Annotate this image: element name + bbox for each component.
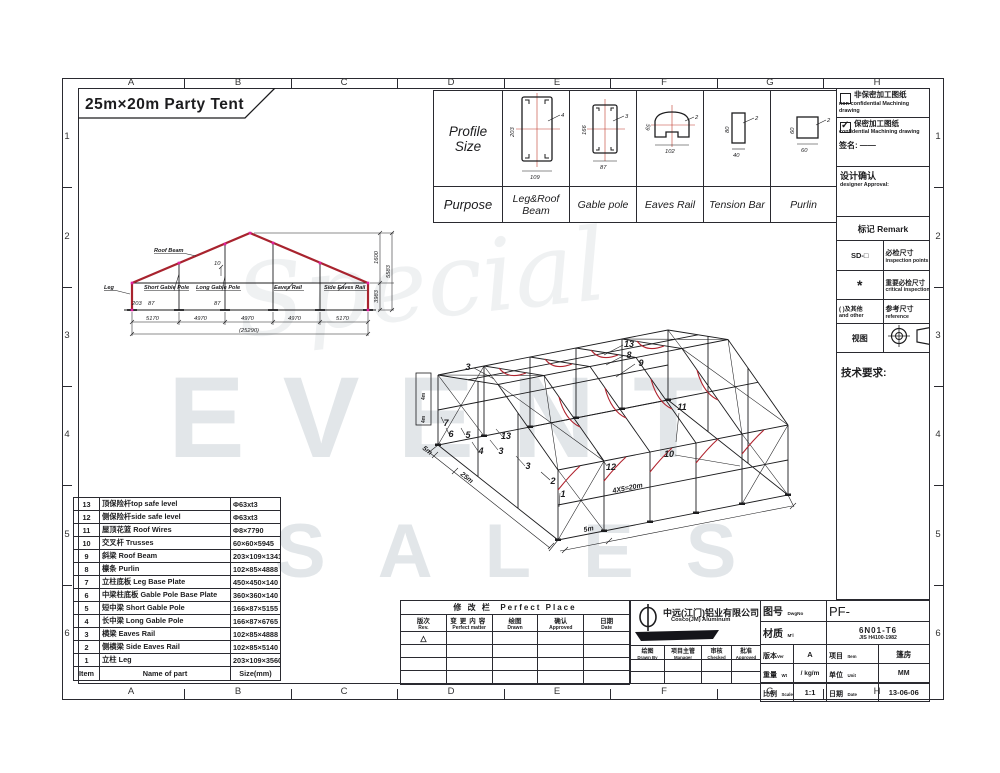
svg-text:203: 203 bbox=[510, 127, 516, 138]
svg-text:3: 3 bbox=[625, 114, 629, 120]
label-short-gable-pole: Short Gable Pole bbox=[144, 285, 189, 291]
table-row: 5短中梁 Short Gable Pole166×87×5155 bbox=[74, 602, 281, 615]
iso-label-2: 2 bbox=[549, 476, 555, 486]
confidential-box: ✓ 保密加工图纸 confidential Machining drawing … bbox=[836, 117, 930, 167]
svg-text:2: 2 bbox=[826, 118, 831, 124]
grid-row-right: 2 bbox=[931, 231, 945, 242]
nonconfidential-cn: 非保密加工图纸 bbox=[854, 91, 927, 99]
svg-text:3983: 3983 bbox=[374, 289, 380, 303]
svg-text:5170: 5170 bbox=[146, 316, 160, 322]
svg-text:5583: 5583 bbox=[386, 264, 392, 278]
signature-line: 签名: —— bbox=[839, 140, 927, 151]
purpose-gable-pole: Gable pole bbox=[570, 187, 637, 223]
tech-requirements-box: 技术要求: bbox=[836, 352, 930, 600]
weight-label: 重量 Wt bbox=[761, 664, 794, 683]
iso-dim-25m: 25m bbox=[458, 470, 474, 485]
unit-label: 单位 Unit bbox=[827, 664, 879, 683]
drawing-title: 25m×20m Party Tent bbox=[85, 96, 244, 113]
title-block-fields: 图号 DwgNo PF- 材质 M'l 6N01-T6 JIS H4100-19… bbox=[760, 600, 930, 702]
svg-text:109: 109 bbox=[530, 175, 540, 181]
nonconfidential-box: 非保密加工图纸 non-confidential Machining drawi… bbox=[836, 88, 930, 118]
col-approved: 确认Approved bbox=[538, 615, 584, 632]
iso-label-8: 8 bbox=[626, 350, 631, 360]
remark-header: 标记 Remark bbox=[837, 217, 930, 241]
table-row: 3横梁 Eaves Rail102×85×4888 bbox=[74, 628, 281, 641]
grid-row-right: 4 bbox=[931, 429, 945, 440]
iso-dim-4m: 4m bbox=[421, 392, 427, 400]
grid-col-top: D bbox=[441, 77, 461, 88]
table-row: 10交叉杆 Trusses60×60×5945 bbox=[74, 537, 281, 550]
iso-label-12: 12 bbox=[606, 462, 616, 472]
svg-text:5170: 5170 bbox=[336, 316, 350, 322]
label-long-gable-pole: Long Gable Pole bbox=[196, 285, 240, 291]
grid-col-bottom: F bbox=[654, 686, 674, 697]
approved-cell: 批准Approved bbox=[732, 646, 760, 659]
item-value: 篷房 bbox=[878, 645, 930, 664]
iso-label-3: 3 bbox=[465, 362, 470, 372]
grid-col-top: C bbox=[334, 77, 354, 88]
grid-row-right: 6 bbox=[931, 628, 945, 639]
profile-size-label: Profile Size bbox=[436, 124, 500, 154]
remark-critical: 重要必检尺寸 critical inspection bbox=[883, 271, 930, 300]
svg-text:4: 4 bbox=[561, 113, 564, 119]
dwg-no-value: PF- bbox=[827, 601, 930, 622]
svg-text:4970: 4970 bbox=[194, 316, 208, 322]
svg-text:1600: 1600 bbox=[374, 250, 380, 264]
iso-label-3b: 3 bbox=[498, 446, 503, 456]
label-eaves-rail: Eaves Rail bbox=[274, 285, 302, 291]
iso-label-13: 13 bbox=[624, 339, 634, 349]
svg-text:10: 10 bbox=[214, 261, 221, 267]
drawn-by-cell: 绘图Drawn By bbox=[631, 646, 665, 659]
total-width-dim: (25290) bbox=[239, 328, 259, 334]
profile-eaves-rail: 2 65 102 bbox=[639, 91, 703, 181]
tech-requirements-label: 技术要求: bbox=[841, 365, 925, 380]
iso-label-13b: 13 bbox=[501, 431, 511, 441]
design-confirm-cn: 设计确认 bbox=[840, 169, 926, 182]
version-value: A bbox=[794, 645, 827, 664]
isometric-view: 3 13 8 9 11 10 12 1 2 3 3 4 5 6 7 13 5m … bbox=[408, 325, 848, 570]
svg-text:87: 87 bbox=[214, 301, 221, 307]
svg-text:87: 87 bbox=[600, 165, 607, 171]
profile-leg-roof-beam: 4 203 109 bbox=[505, 91, 569, 181]
svg-text:203: 203 bbox=[131, 301, 142, 307]
label-side-eaves-rail: Side Eaves Rail bbox=[324, 285, 366, 291]
company-name-en: Cosco(JM) Aluminum bbox=[671, 617, 730, 623]
design-confirm-box: 设计确认 designer Approval: bbox=[836, 166, 930, 217]
unit-value: MM bbox=[878, 664, 930, 683]
table-row: 9斜梁 Roof Beam203×109×13410 bbox=[74, 550, 281, 563]
grid-col-bottom: A bbox=[121, 686, 141, 697]
checkbox-checked: ✓ bbox=[840, 122, 851, 133]
grid-row-left: 1 bbox=[60, 131, 74, 142]
iso-label-4: 4 bbox=[477, 446, 483, 456]
label-roof-beam: Roof Beam bbox=[154, 248, 184, 254]
iso-dim-5m: 5m bbox=[421, 445, 433, 457]
remark-inspection: 必检尺寸 inspection points bbox=[883, 241, 930, 271]
table-row: 11屋顶花篮 Roof WiresΦ8×7790 bbox=[74, 524, 281, 537]
confidential-cn: 保密加工图纸 bbox=[854, 120, 927, 128]
svg-text:80: 80 bbox=[725, 126, 731, 133]
manager-cell: 项目主管Manager bbox=[665, 646, 702, 659]
grid-col-top: B bbox=[228, 77, 248, 88]
grid-row-right: 3 bbox=[931, 330, 945, 341]
confidential-en: confidential Machining drawing bbox=[839, 129, 927, 136]
iso-label-11: 11 bbox=[677, 402, 686, 412]
iso-label-9: 9 bbox=[638, 358, 643, 368]
svg-text:65: 65 bbox=[645, 123, 653, 132]
material-label: 材质 M'l bbox=[761, 622, 827, 645]
purpose-leg-roof-beam: Leg&Roof Beam bbox=[503, 187, 570, 223]
grid-col-bottom: B bbox=[228, 686, 248, 697]
grid-col-top: F bbox=[654, 77, 674, 88]
revision-block: 修 改 栏 Perfect Place 版次Rev. 变更内容Perfect m… bbox=[400, 600, 630, 685]
date-label: 日期 Date bbox=[827, 683, 879, 702]
design-confirm-en: designer Approval: bbox=[840, 182, 926, 188]
purpose-purlin: Purlin bbox=[771, 187, 837, 223]
iso-label-6: 6 bbox=[448, 429, 454, 439]
bom-table: 13顶保险杆top safe levelΦ63xt3 12侧保险杆side sa… bbox=[73, 497, 281, 681]
table-row: 12侧保险杆side safe levelΦ63xt3 bbox=[74, 511, 281, 524]
table-row: 4长中梁 Long Gable Pole166×87×6765 bbox=[74, 615, 281, 628]
revision-marker-icon: △ bbox=[401, 632, 447, 645]
purpose-label: Purpose bbox=[434, 187, 503, 223]
iso-label-1: 1 bbox=[560, 489, 565, 499]
grid-col-top: E bbox=[547, 77, 567, 88]
weight-value: / kg/m bbox=[794, 664, 827, 683]
grid-row-left: 4 bbox=[60, 429, 74, 440]
col-matter: 变更内容Perfect matter bbox=[446, 615, 492, 632]
svg-text:2: 2 bbox=[694, 115, 699, 121]
check-icon: ✓ bbox=[841, 120, 849, 131]
col-drawn: 绘图Drawn bbox=[492, 615, 538, 632]
scale-label: 比例 Scale bbox=[761, 683, 794, 702]
iso-label-3c: 3 bbox=[525, 461, 530, 471]
svg-text:2: 2 bbox=[754, 116, 759, 122]
grid-row-left: 2 bbox=[60, 231, 74, 242]
remark-reference: 参考尺寸 reference bbox=[883, 300, 930, 324]
svg-text:4970: 4970 bbox=[241, 316, 255, 322]
grid-row-left: 6 bbox=[60, 628, 74, 639]
grid-row-left: 3 bbox=[60, 330, 74, 341]
item-label: 项目 Item bbox=[827, 645, 879, 664]
svg-text:40: 40 bbox=[733, 153, 740, 159]
grid-col-top: H bbox=[867, 77, 887, 88]
joint-nodes bbox=[131, 232, 370, 311]
projection-symbol-icon bbox=[883, 324, 930, 353]
col-date: 日期Date bbox=[584, 615, 630, 632]
remark-sym-other: ( )及其他 and other bbox=[837, 300, 884, 324]
grid-row-left: 5 bbox=[60, 529, 74, 540]
date-value: 13-06-06 bbox=[878, 683, 930, 702]
svg-text:166: 166 bbox=[582, 125, 588, 135]
company-banner-logo bbox=[633, 629, 723, 642]
checked-cell: 审核Checked bbox=[702, 646, 732, 659]
profile-size-table: Profile Size 4 203 109 bbox=[433, 90, 837, 223]
iso-dim-5m-b: 5m bbox=[583, 525, 594, 534]
roof-beams-red bbox=[132, 233, 368, 310]
remark-sym-star: * bbox=[837, 271, 884, 300]
company-block: 中远(江门)铝业有限公司 Cosco(JM) Aluminum 绘图Drawn … bbox=[630, 600, 761, 684]
svg-text:60: 60 bbox=[801, 148, 808, 154]
material-value: 6N01-T6 JIS H4100-1982 bbox=[827, 622, 930, 645]
table-row: 8檩条 Purlin102×85×4888 bbox=[74, 563, 281, 576]
remark-table: 标记 Remark SD-□ 必检尺寸 inspection points * … bbox=[836, 216, 930, 353]
grid-col-bottom: E bbox=[547, 686, 567, 697]
svg-text:60: 60 bbox=[790, 127, 796, 134]
red-braces bbox=[499, 341, 764, 490]
table-row: 7立柱底板 Leg Base Plate450×450×140 bbox=[74, 576, 281, 589]
purpose-tension-bar: Tension Bar bbox=[704, 187, 771, 223]
grid-row-right: 5 bbox=[931, 529, 945, 540]
grid-col-top: G bbox=[760, 77, 780, 88]
grid-row-right: 1 bbox=[931, 131, 945, 142]
iso-dim-20m: 4X5=20m bbox=[611, 482, 643, 495]
bom-footer-row: ItemName of partSize(mm) bbox=[74, 667, 281, 681]
iso-label-10: 10 bbox=[664, 449, 674, 459]
grid-col-top: A bbox=[121, 77, 141, 88]
iso-dim-4m-b: 4m bbox=[421, 415, 427, 423]
nonconfidential-en: non-confidential Machining drawing bbox=[839, 101, 927, 115]
purpose-eaves-rail: Eaves Rail bbox=[637, 187, 704, 223]
profile-gable-pole: 3 166 87 bbox=[572, 91, 636, 181]
version-label: 版本Ver bbox=[761, 645, 794, 664]
svg-text:102: 102 bbox=[665, 149, 675, 155]
grid-col-bottom: D bbox=[441, 686, 461, 697]
table-row: 13顶保险杆top safe levelΦ63xt3 bbox=[74, 498, 281, 511]
revision-title: 修 改 栏 Perfect Place bbox=[401, 601, 630, 615]
company-logo-icon bbox=[635, 604, 661, 632]
grid-col-bottom: C bbox=[334, 686, 354, 697]
profile-tension-bar: 2 80 40 bbox=[706, 91, 770, 181]
checkbox-unchecked bbox=[840, 93, 851, 104]
label-leg: Leg bbox=[104, 285, 115, 291]
table-row: 6中梁柱底板 Gable Pole Base Plate360×360×140 bbox=[74, 589, 281, 602]
profile-purlin: 2 60 60 bbox=[773, 91, 837, 181]
scale-value: 1:1 bbox=[794, 683, 827, 702]
col-rev: 版次Rev. bbox=[401, 615, 447, 632]
dwg-no-label: 图号 DwgNo bbox=[761, 601, 827, 622]
remark-sym-sd: SD-□ bbox=[837, 241, 884, 271]
table-row: 2侧横梁 Side Eaves Rail102×85×5140 bbox=[74, 641, 281, 654]
svg-text:4970: 4970 bbox=[288, 316, 302, 322]
svg-text:87: 87 bbox=[148, 301, 155, 307]
table-row: 1立柱 Leg203×109×3560 bbox=[74, 654, 281, 667]
title-strip: 25m×20m Party Tent bbox=[78, 88, 288, 120]
elevation-view: Roof Beam Leg Short Gable Pole Long Gabl… bbox=[88, 226, 438, 344]
